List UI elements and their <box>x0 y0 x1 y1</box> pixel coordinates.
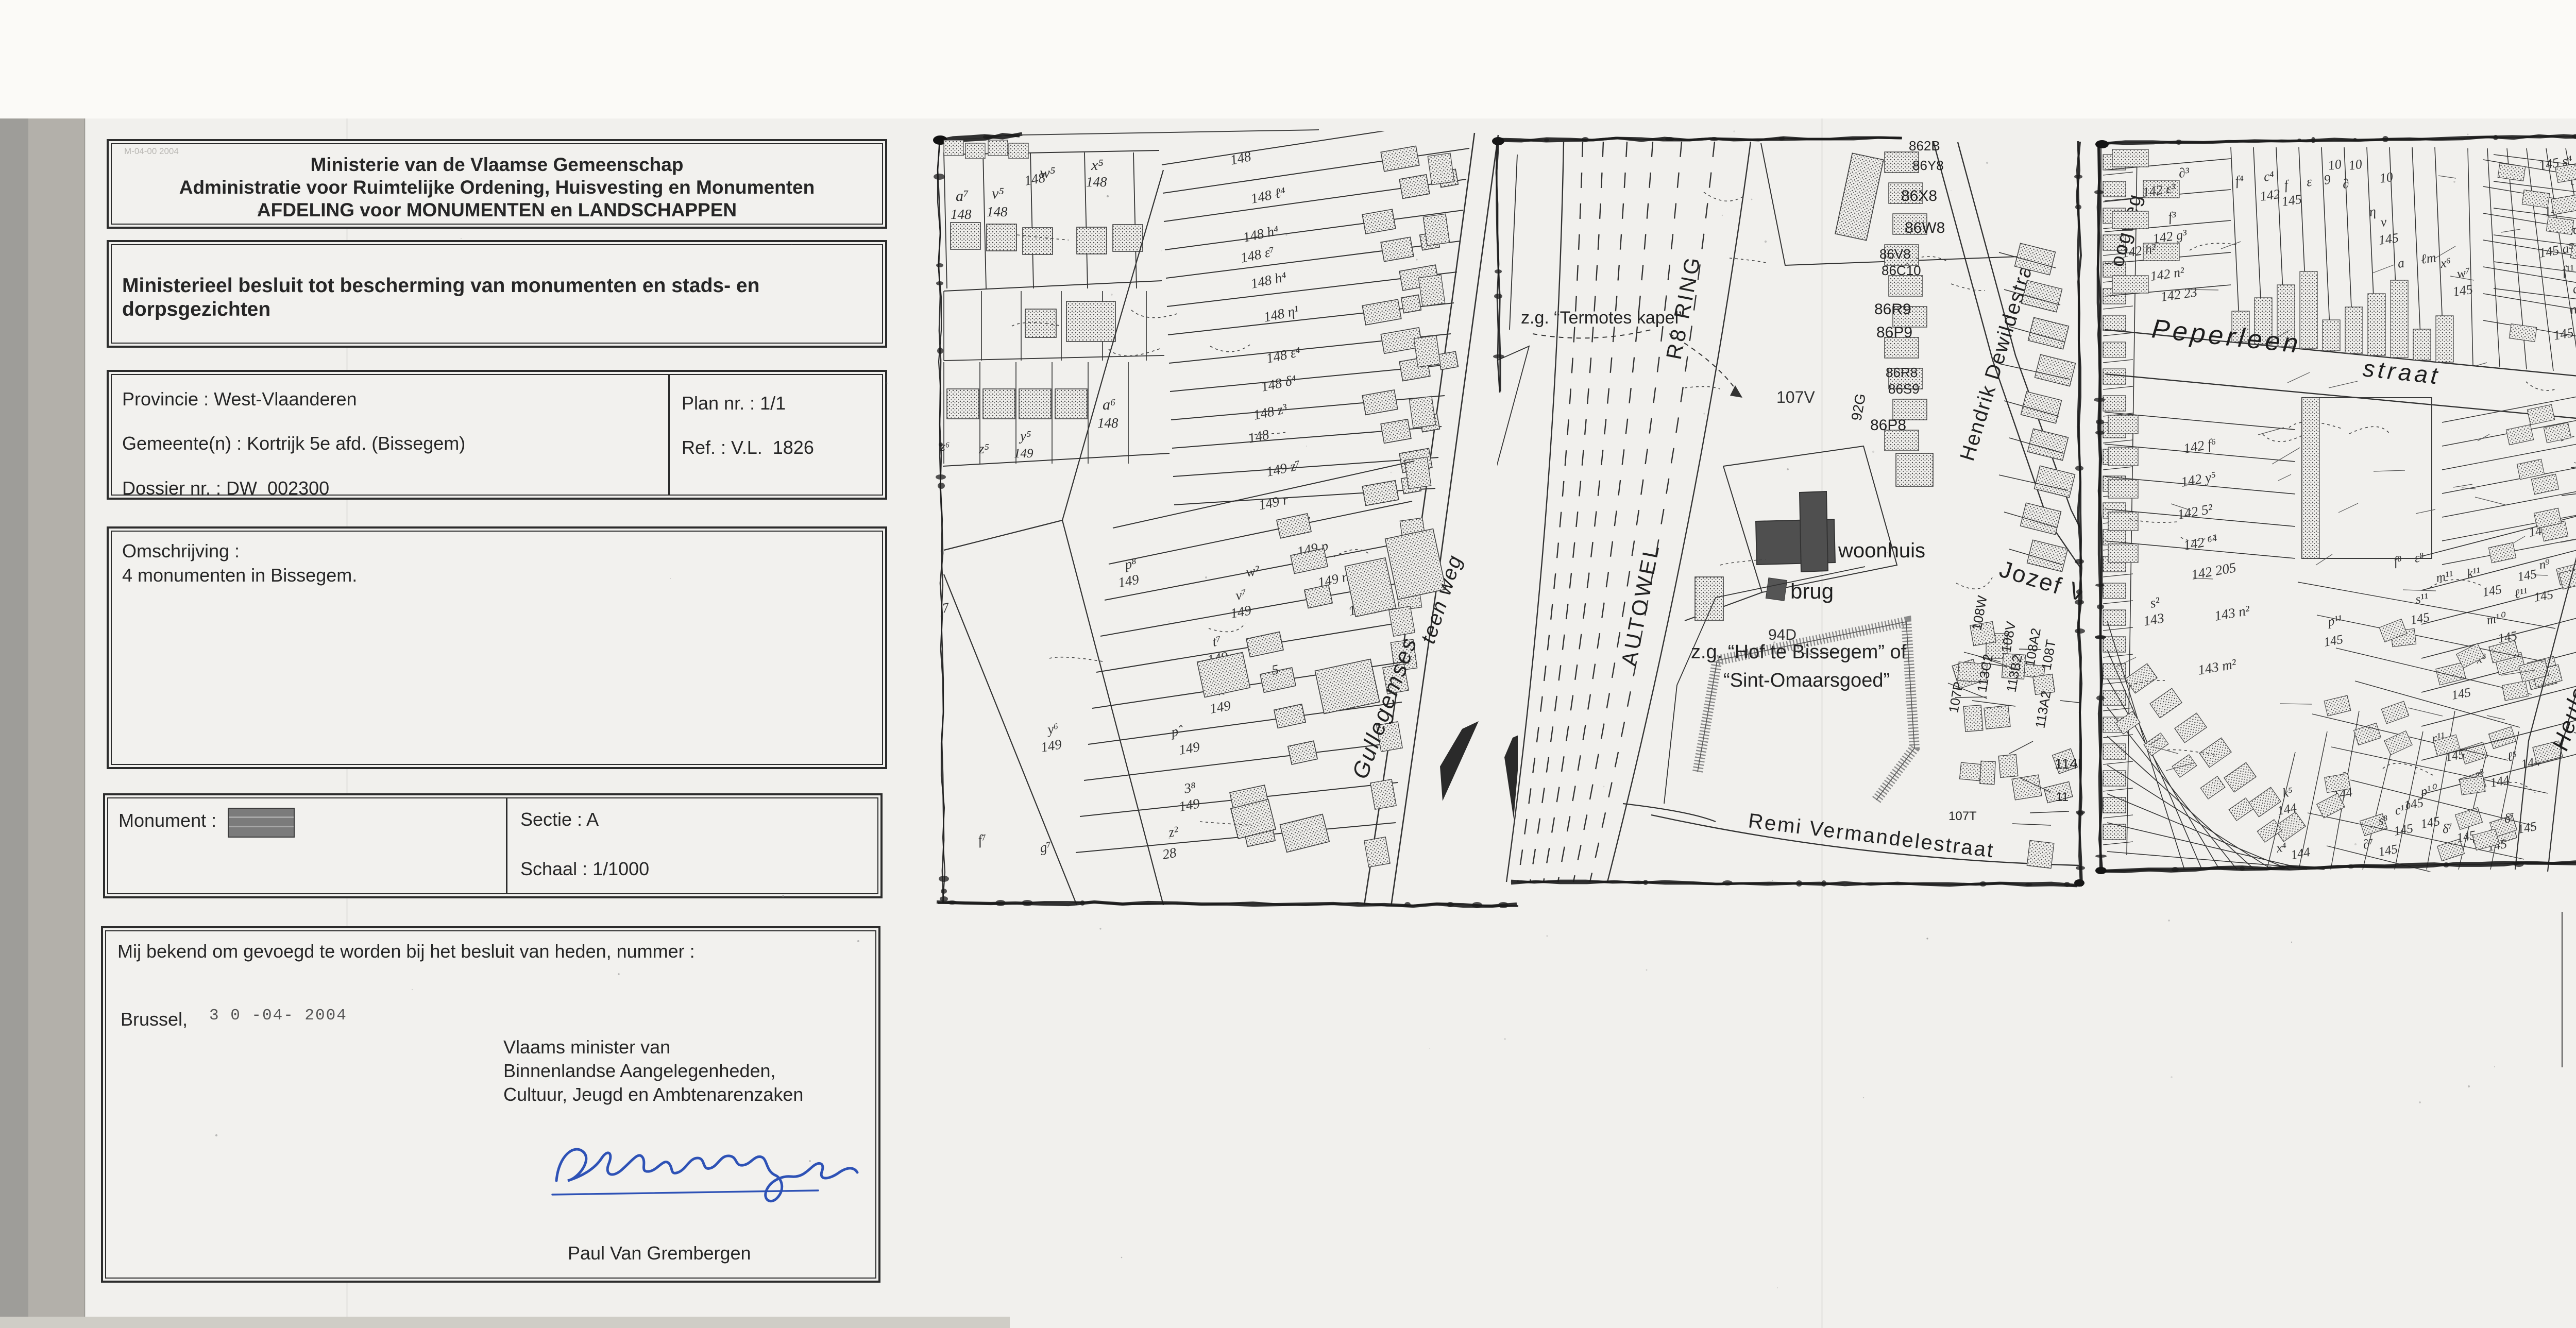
svg-text:∂³: ∂³ <box>2178 164 2191 181</box>
svg-text:148: 148 <box>1023 169 1047 189</box>
svg-text:c⁵: c⁵ <box>2571 221 2576 237</box>
svg-text:145: 145 <box>2377 842 2399 859</box>
svg-text:145: 145 <box>2378 230 2400 248</box>
svg-text:x⁶: x⁶ <box>2439 254 2452 271</box>
svg-text:142 5²: 142 5² <box>2176 501 2214 522</box>
svg-text:ℓ¹¹: ℓ¹¹ <box>2513 586 2529 602</box>
svg-text:AUTOWEL: AUTOWEL <box>1617 541 1664 668</box>
svg-text:145: 145 <box>2533 588 2554 605</box>
svg-text:f⁷: f⁷ <box>977 831 988 847</box>
svg-text:149: 149 <box>1117 571 1141 590</box>
svg-text:v⁷: v⁷ <box>1234 586 1248 603</box>
svg-text:x⁴: x⁴ <box>2275 840 2287 856</box>
svg-text:145: 145 <box>2393 822 2414 839</box>
svg-text:107V: 107V <box>1776 388 1815 406</box>
svg-text:z⁵: z⁵ <box>978 441 989 456</box>
svg-text:86W8: 86W8 <box>1905 219 1945 236</box>
svg-text:145: 145 <box>2281 192 2303 209</box>
svg-text:a¹¹: a¹¹ <box>2571 279 2576 297</box>
svg-text:86X8: 86X8 <box>1901 188 1937 205</box>
svg-text:z.g. “Hof te Bissegem” of: z.g. “Hof te Bissegem” of <box>1691 641 1907 663</box>
svg-text:f: f <box>2283 177 2291 193</box>
svg-text:t⁷: t⁷ <box>1211 633 1223 649</box>
svg-text:m¹⁰: m¹⁰ <box>2485 610 2508 627</box>
svg-text:148 δ⁴: 148 δ⁴ <box>1260 372 1298 395</box>
svg-text:x⁵: x⁵ <box>1091 157 1104 174</box>
svg-text:145: 145 <box>2419 814 2441 831</box>
svg-text:144: 144 <box>2290 845 2311 862</box>
svg-text:86C10: 86C10 <box>1882 263 1921 278</box>
svg-text:145: 145 <box>2481 583 2503 600</box>
svg-text:148: 148 <box>1086 174 1107 190</box>
svg-text:142 205: 142 205 <box>2190 559 2238 583</box>
svg-text:148: 148 <box>1247 427 1270 446</box>
svg-text:145: 145 <box>2452 282 2474 299</box>
svg-text:143: 143 <box>2142 610 2165 629</box>
svg-text:v: v <box>2380 214 2388 230</box>
svg-text:92G: 92G <box>1848 393 1869 422</box>
svg-text:142 g³: 142 g³ <box>2152 227 2189 246</box>
svg-text:148: 148 <box>987 204 1008 219</box>
svg-text:woonhuis: woonhuis <box>1838 539 1925 562</box>
svg-text:108V: 108V <box>1998 620 2019 654</box>
svg-text:brug: brug <box>1790 579 1834 603</box>
svg-text:10: 10 <box>2348 157 2363 173</box>
svg-text:148 h⁴: 148 h⁴ <box>1242 223 1280 245</box>
svg-text:a: a <box>2397 255 2405 271</box>
svg-text:107T: 107T <box>1948 809 1977 823</box>
svg-text:142 ⁶⁴: 142 ⁶⁴ <box>2182 532 2218 553</box>
svg-text:w²: w² <box>1245 563 1261 580</box>
svg-text:148: 148 <box>951 207 972 222</box>
svg-text:28: 28 <box>1161 845 1178 862</box>
svg-text:ℓm: ℓm <box>2420 250 2437 267</box>
svg-text:86R8: 86R8 <box>1886 365 1918 380</box>
svg-text:n⁹: n⁹ <box>2538 557 2551 572</box>
svg-text:∂: ∂ <box>2342 176 2350 192</box>
svg-text:k⁵: k⁵ <box>2281 785 2294 801</box>
svg-text:f⁴: f⁴ <box>2234 173 2245 189</box>
svg-text:p¹¹: p¹¹ <box>2326 613 2343 629</box>
svg-text:149: 149 <box>1178 739 1201 758</box>
svg-text:142 f⁶: 142 f⁶ <box>2182 435 2217 456</box>
svg-text:149: 149 <box>1014 447 1033 461</box>
svg-text:y⁵: y⁵ <box>1019 428 1031 444</box>
svg-text:149: 149 <box>1178 795 1201 814</box>
svg-text:86P8: 86P8 <box>1870 417 1906 434</box>
svg-text:y⁶: y⁶ <box>1045 720 1060 738</box>
svg-text:s²: s² <box>2149 594 2161 611</box>
svg-text:86V8: 86V8 <box>1879 246 1911 262</box>
svg-text:Hendrik Dewildestraat: Hendrik Dewildestraat <box>1956 244 2043 464</box>
svg-text:9: 9 <box>2323 172 2332 188</box>
svg-text:108T: 108T <box>2038 638 2059 671</box>
svg-text:a⁷: a⁷ <box>956 188 969 205</box>
svg-text:f⁸: f⁸ <box>2393 554 2403 569</box>
svg-text:113A2: 113A2 <box>2032 690 2054 729</box>
svg-text:ℓ⁵: ℓ⁵ <box>2506 749 2518 764</box>
svg-text:148 z³: 148 z³ <box>1252 401 1289 423</box>
svg-text:z.g. “Termotes kapel”: z.g. “Termotes kapel” <box>1521 308 1684 328</box>
svg-text:pˆ: pˆ <box>1169 722 1185 740</box>
svg-text:142: 142 <box>2259 186 2281 204</box>
svg-text:143 n²: 143 n² <box>2213 602 2251 624</box>
svg-text:114M: 114M <box>2055 756 2090 772</box>
svg-text:145: 145 <box>2516 567 2538 584</box>
svg-text:p⁸: p⁸ <box>1123 555 1138 572</box>
svg-text:113C2: 113C2 <box>1974 653 1996 693</box>
svg-text:149 z⁷: 149 z⁷ <box>1265 457 1302 480</box>
svg-text:10: 10 <box>2379 169 2394 186</box>
svg-text:“Sint-Omaarsgoed”: “Sint-Omaarsgoed” <box>1723 670 1890 691</box>
svg-text:145: 145 <box>2409 610 2431 627</box>
svg-text:η: η <box>2368 203 2377 219</box>
svg-text:142 23: 142 23 <box>2160 284 2198 304</box>
svg-text:149: 149 <box>1040 736 1063 755</box>
svg-text:148 ℓ⁴: 148 ℓ⁴ <box>1249 184 1287 206</box>
svg-text:86S9: 86S9 <box>1888 381 1920 397</box>
svg-text:v⁵: v⁵ <box>992 185 1004 202</box>
svg-text:148 ε⁷: 148 ε⁷ <box>1239 244 1276 266</box>
svg-text:δ⁷: δ⁷ <box>2441 821 2454 837</box>
svg-text:149: 149 <box>1229 602 1253 621</box>
svg-text:148: 148 <box>1229 148 1252 168</box>
svg-text:86R9: 86R9 <box>1874 301 1911 318</box>
svg-text:ectie: ectie <box>2567 783 2576 904</box>
svg-text:∂⁷: ∂⁷ <box>2362 837 2375 852</box>
svg-text:c⁴: c⁴ <box>2263 168 2275 184</box>
svg-text:3⁸: 3⁸ <box>1182 779 1197 796</box>
svg-text:f³: f³ <box>2167 209 2178 225</box>
svg-text:s⁸: s⁸ <box>2377 813 2389 828</box>
svg-text:a⁶: a⁶ <box>1103 396 1115 413</box>
svg-text:11: 11 <box>2056 790 2069 804</box>
svg-text:R8 RING: R8 RING <box>1662 253 1705 362</box>
svg-text:862B: 862B <box>1909 138 1940 154</box>
svg-text:148 ε⁴: 148 ε⁴ <box>1265 344 1302 366</box>
svg-text:148 h⁴: 148 h⁴ <box>1249 269 1288 292</box>
svg-text:n⁵: n⁵ <box>2569 301 2576 317</box>
svg-text:ε⁸: ε⁸ <box>2413 550 2425 566</box>
svg-text:148: 148 <box>1097 415 1118 431</box>
svg-text:142 n²: 142 n² <box>2149 264 2186 284</box>
svg-text:107P: 107P <box>1945 680 1966 714</box>
svg-text:143 т²: 143 т² <box>2197 656 2238 678</box>
svg-text:86Y8: 86Y8 <box>1912 158 1944 173</box>
svg-text:ε: ε <box>2306 174 2313 190</box>
svg-text:149: 149 <box>1209 697 1232 717</box>
svg-text:145: 145 <box>2450 686 2472 703</box>
svg-text:10: 10 <box>2327 157 2343 173</box>
svg-text:145: 145 <box>2323 633 2344 650</box>
svg-text:148 η¹: 148 η¹ <box>1262 302 1300 325</box>
svg-text:86P9: 86P9 <box>1876 324 1912 341</box>
